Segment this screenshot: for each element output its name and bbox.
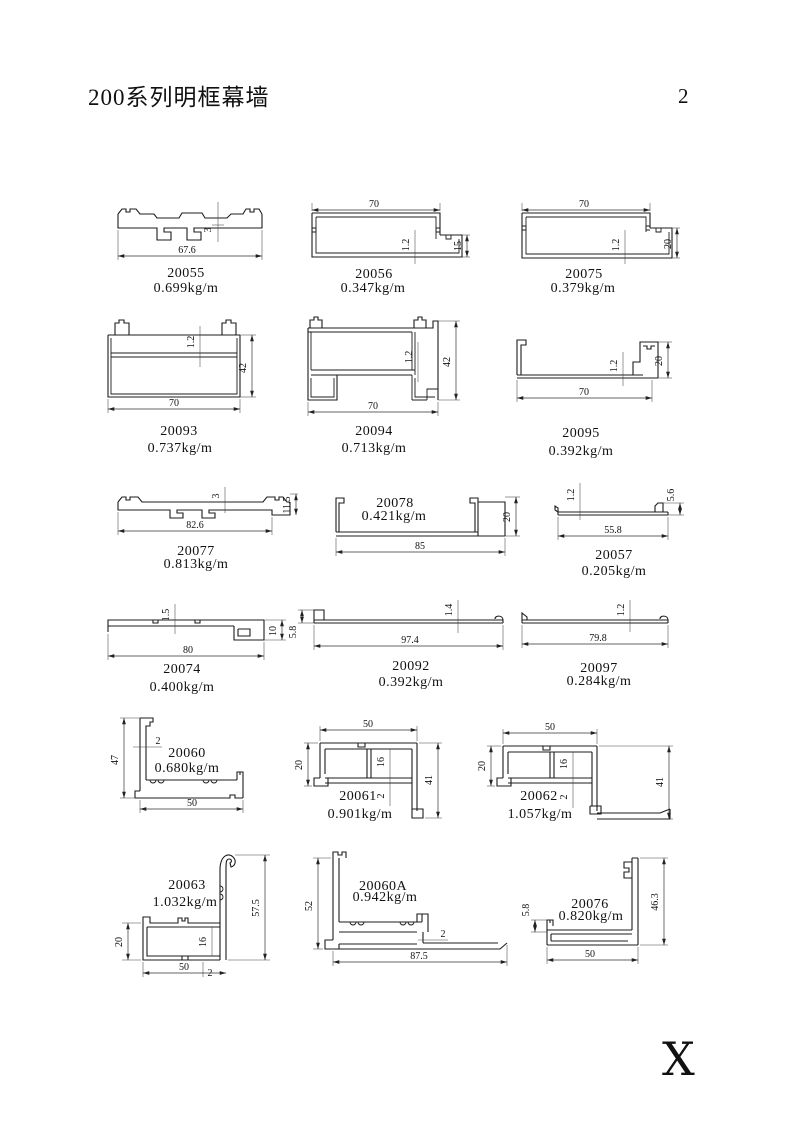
dimension-value: 2	[376, 794, 387, 799]
dimension-value: 5.8	[288, 626, 299, 639]
profile-code: 20057	[595, 548, 633, 564]
profile-weight: 0.392kg/m	[379, 675, 444, 691]
dimension-value: 11.5	[282, 496, 293, 513]
profile-weight: 0.699kg/m	[154, 281, 219, 297]
profile-outline	[108, 620, 264, 632]
profile-weight: 0.379kg/m	[551, 281, 616, 297]
profile-weight: 0.421kg/m	[362, 509, 427, 525]
profile-outline	[118, 214, 262, 240]
drawing-20097: 1.2 79.8	[512, 594, 682, 666]
profile-weight: 0.820kg/m	[559, 909, 624, 925]
dimension-value: 5.6	[666, 489, 677, 502]
dimension-value: 2	[441, 929, 446, 940]
drawing-20062: 50 20 16 2 41	[470, 716, 680, 828]
profile-weight: 0.205kg/m	[582, 564, 647, 580]
dimension-value: 80	[183, 645, 193, 656]
dimension-value: 1.4	[444, 604, 455, 617]
dimension-value: 70	[369, 199, 379, 210]
dimension-value: 3	[211, 494, 222, 499]
profile-code: 20094	[355, 424, 393, 440]
drawing-20055: 3 67.6	[95, 198, 305, 264]
dimension-value: 1.2	[611, 239, 622, 252]
dimension-value: 20	[502, 512, 513, 522]
dimension-value: 20	[654, 356, 665, 366]
dimension-value: 15	[453, 241, 464, 251]
dimension-value: 46.3	[650, 893, 661, 911]
dimension-value: 50	[179, 962, 189, 973]
profile-tab	[310, 317, 426, 328]
profile-outline	[517, 340, 658, 378]
profile-tab	[115, 320, 236, 335]
profile-weight: 0.942kg/m	[353, 890, 418, 906]
profile-outline	[234, 620, 264, 640]
profile-weight: 0.813kg/m	[164, 557, 229, 573]
profile-code: 20062	[520, 789, 558, 805]
profile-code: 20061	[339, 789, 377, 805]
dimension-value: 79.8	[589, 633, 607, 644]
dimension-value: 20	[663, 239, 674, 249]
profile-code: 20055	[167, 266, 205, 282]
profile-outline	[312, 213, 462, 257]
dimension-value: 42	[238, 363, 249, 373]
profile-outline	[311, 332, 438, 400]
profile-code: 20092	[392, 659, 430, 675]
dimension-value: 3	[203, 228, 214, 233]
dimension-value: 16	[376, 757, 387, 767]
dimension-value: 1.2	[401, 239, 412, 252]
profile-weight: 0.901kg/m	[328, 807, 393, 823]
dimension-value: 97.4	[401, 635, 419, 646]
dimension-value: 1.2	[186, 336, 197, 349]
dimension-value: 1.5	[161, 609, 172, 622]
profile-outline	[118, 497, 290, 502]
dimension-value: 85	[415, 541, 425, 552]
profile-weight: 0.284kg/m	[567, 674, 632, 690]
profile-notch	[312, 228, 451, 239]
drawing-20094: 1.2 42 70	[302, 312, 477, 424]
profile-outline	[314, 610, 503, 623]
dimension-value: 1.2	[404, 351, 415, 364]
dimension-value: 41	[655, 777, 666, 787]
profile-outline	[118, 502, 290, 518]
dimension-value: 70	[579, 387, 589, 398]
dimension-value: 2	[208, 968, 213, 979]
profile-outline	[316, 217, 459, 253]
dimension-value: 82.6	[186, 520, 204, 531]
dimension-value: 42	[442, 357, 453, 367]
profile-code: 20063	[168, 878, 206, 894]
drawing-20063: 20 16 57.5 50 2	[100, 848, 285, 988]
profile-outline	[220, 855, 235, 960]
drawing-20075: 70 1.2 20	[512, 198, 684, 270]
dimension-value: 70	[579, 199, 589, 210]
profile-weight: 1.032kg/m	[153, 895, 218, 911]
dimension-value: 20	[114, 937, 125, 947]
catalog-page: 200系列明框幕墙 2 X 3 67.6 20055 0.699kg/m 70 …	[0, 0, 800, 1131]
dimension-value: 20	[477, 761, 488, 771]
profile-weight: 0.713kg/m	[342, 441, 407, 457]
profile-outline	[108, 335, 240, 397]
profile-outline	[308, 321, 438, 400]
drawing-20056: 70 1.2 15	[302, 198, 474, 268]
dimension-value: 57.5	[251, 899, 262, 917]
dimension-value: 50	[363, 719, 373, 730]
dimension-value: 10	[268, 626, 279, 636]
dimension-value: 1.2	[566, 489, 577, 502]
profile-weight: 1.057kg/m	[508, 807, 573, 823]
profile-outline	[555, 506, 668, 515]
dimension-value: 1.2	[616, 604, 627, 617]
profile-weight: 0.347kg/m	[341, 281, 406, 297]
drawing-20074: 1.5 10 80	[100, 592, 305, 670]
profile-code: 20074	[163, 662, 201, 678]
profile-code: 20093	[160, 424, 198, 440]
dimension-value: 50	[545, 722, 555, 733]
drawing-20095: 1.2 20 70	[512, 312, 687, 424]
dimension-value: 1.2	[609, 360, 620, 373]
dimension-value: 70	[169, 398, 179, 409]
profile-weight: 0.392kg/m	[549, 444, 614, 460]
profile-code: 20095	[562, 426, 600, 442]
profile-outline	[470, 498, 505, 536]
dimension-value: 52	[304, 901, 315, 911]
profile-outline	[522, 213, 672, 258]
profile-weight: 0.737kg/m	[148, 441, 213, 457]
dimension-value: 20	[294, 760, 305, 770]
profile-outline	[526, 217, 669, 254]
drawing-20060A: 52 2 87.5	[300, 848, 515, 988]
dimension-value: 47	[110, 755, 121, 765]
drawing-20078: 20 85	[328, 482, 526, 562]
dimension-value: 16	[198, 937, 209, 947]
dimension-value: 16	[559, 759, 570, 769]
profile-outline	[111, 338, 237, 394]
profile-weight: 0.400kg/m	[150, 680, 215, 696]
corner-mark: X	[662, 1032, 695, 1086]
dimension-value: 50	[585, 949, 595, 960]
page-title: 200系列明框幕墙	[88, 78, 270, 112]
dimension-value: 2	[559, 795, 570, 800]
profile-code: 20060	[168, 746, 206, 762]
dimension-value: 2	[156, 736, 161, 747]
profile-outline	[118, 209, 262, 218]
profile-notch	[522, 226, 661, 232]
dimension-value: 41	[424, 775, 435, 785]
page-number: 2	[678, 84, 689, 109]
profile-weight: 0.680kg/m	[155, 761, 220, 777]
profile-outline	[655, 503, 663, 512]
dimension-value: 55.8	[604, 525, 622, 536]
dimension-value: 87.5	[410, 951, 428, 962]
dimension-value: 70	[368, 401, 378, 412]
profile-outline	[522, 613, 668, 623]
drawing-20093: 1.2 42 70	[100, 312, 275, 424]
dimension-value: 50	[187, 798, 197, 809]
dimension-value: 5.8	[521, 904, 532, 917]
dimension-value: 67.6	[178, 245, 196, 256]
